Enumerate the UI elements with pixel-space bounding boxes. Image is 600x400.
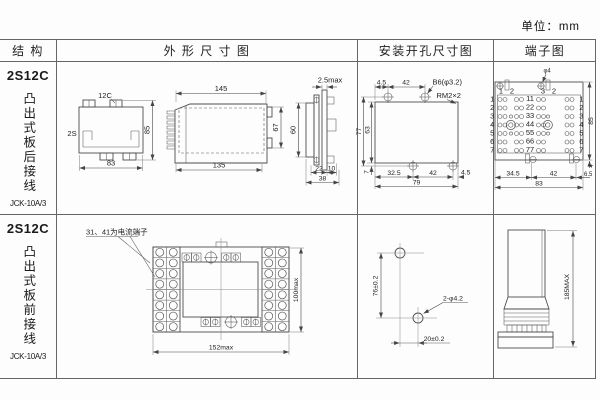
thread-callout: RM2×2 xyxy=(437,91,461,100)
dim-145: 145 xyxy=(215,84,228,93)
dim-152max: 152max xyxy=(209,345,234,352)
dim-38: 38 xyxy=(319,175,327,182)
svg-text:1: 1 xyxy=(499,87,503,96)
svg-text:2: 2 xyxy=(510,87,514,96)
dim-42-term: 42 xyxy=(550,170,558,177)
hole-callout-2: 2-φ4.2 xyxy=(443,296,463,303)
dim-6.5: 6.5 xyxy=(584,172,593,178)
svg-text:77: 77 xyxy=(526,145,534,154)
dim-22: 22 xyxy=(315,165,323,172)
dim-7: 7 xyxy=(364,170,371,174)
dim-42-bot: 42 xyxy=(429,170,437,177)
dim-34.5: 34.5 xyxy=(506,170,519,177)
dim-10: 10 xyxy=(328,165,336,172)
current-terminal-note: 31、41为电流端子 xyxy=(86,227,148,237)
row1-mounting-drawing: 4.5 42 B6(φ3.2) RM2×2 77 63 7 32.5 42 4.… xyxy=(356,78,471,190)
label-2s: 2S xyxy=(67,129,76,138)
dim-79: 79 xyxy=(413,180,421,187)
svg-text:3: 3 xyxy=(541,87,545,96)
dim-83-term: 83 xyxy=(535,180,543,187)
dim-185max: 185MAX xyxy=(564,274,571,301)
dim-4.5-bot: 4.5 xyxy=(461,170,471,177)
dim-4.5-top: 4.5 xyxy=(377,79,387,86)
dim-135: 135 xyxy=(213,161,226,170)
terminal-grid: 11112222333344445555666677771232 xyxy=(490,87,583,155)
dim-32.5: 32.5 xyxy=(387,170,400,177)
dim-85-term: 85 xyxy=(588,117,595,125)
dim-63: 63 xyxy=(365,126,372,134)
dim-77: 77 xyxy=(356,128,363,136)
label-12c: 12C xyxy=(98,91,112,100)
svg-text:2: 2 xyxy=(552,87,556,96)
row2-side-view: 185MAX xyxy=(498,230,577,348)
hole-phi4: φ4 xyxy=(544,69,552,75)
row1-panel-view: 2.5max 60 22 10 38 xyxy=(289,76,343,186)
dim-85: 85 xyxy=(143,126,152,134)
table-grid xyxy=(0,40,596,379)
dim-83: 83 xyxy=(107,159,115,168)
row1-side-view: 145 135 67 xyxy=(167,84,284,173)
row1-terminal-drawing: 11112222333344445555666677771232 φ4 85 4… xyxy=(490,69,595,191)
dim-20: 20±0.2 xyxy=(424,336,445,343)
svg-text:7: 7 xyxy=(579,145,583,154)
drawings-canvas: 12C 2S 83 85 145 135 67 xyxy=(0,0,600,400)
dim-76: 76±0.2 xyxy=(373,275,380,296)
hole-callout: B6(φ3.2) xyxy=(433,78,463,87)
dim-2.5max: 2.5max xyxy=(318,76,343,85)
dim-100max: 100max xyxy=(293,277,300,302)
dim-42-top: 42 xyxy=(402,79,410,86)
row2-front-view: 31、41为电流端子 100max 152max xyxy=(86,227,304,356)
datasheet-page: 单位：mm 结 构 外 形 尺 寸 图 安装开孔尺寸图 端子图 2S12C 凸出… xyxy=(0,0,600,400)
row1-back-view: 12C 2S 83 85 xyxy=(67,91,156,171)
row2-mounting-drawing: 76±0.2 20±0.2 2-φ4.2 xyxy=(373,243,469,347)
svg-text:7: 7 xyxy=(490,145,494,154)
dim-60: 60 xyxy=(289,126,298,134)
dim-67: 67 xyxy=(271,123,280,131)
